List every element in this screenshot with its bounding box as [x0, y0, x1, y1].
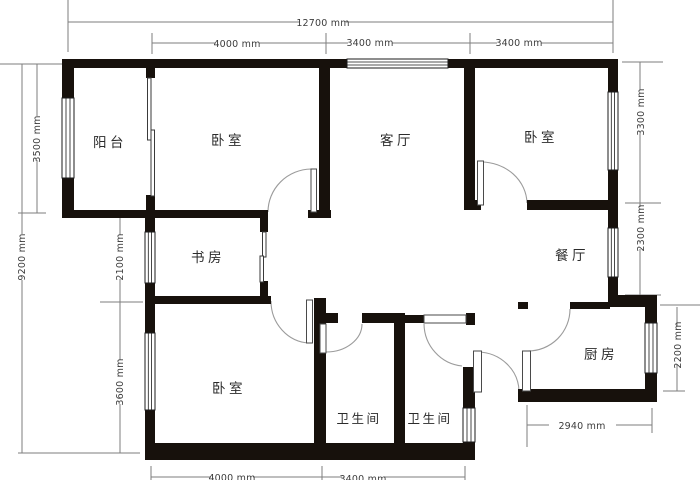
room-labels: 阳台 卧室 客厅 卧室 书房 餐厅 卧室 卫生间 卫生间 厨房 [93, 129, 618, 426]
study-window-icon [145, 232, 155, 283]
bedroom-nw-door-leaf [311, 169, 317, 212]
bedroom-ne-window-icon [608, 92, 618, 170]
bedroom-sw-window-icon [145, 333, 155, 410]
bath-west-door-leaf [320, 324, 326, 353]
room-label-dining: 餐厅 [555, 248, 589, 264]
study-slider-panel [260, 256, 264, 282]
room-label-bedroom-ne: 卧室 [524, 129, 558, 146]
room-label-balcony: 阳台 [93, 135, 127, 151]
dim-left-a: 3500 mm [32, 115, 43, 162]
dim-top-c: 3400 mm [495, 38, 542, 49]
room-label-living: 客厅 [380, 132, 414, 149]
room-label-bedroom-nw: 卧室 [211, 132, 245, 149]
dim-top-total: 12700 mm [296, 18, 349, 29]
bedroom-sw-door-leaf [307, 300, 313, 343]
room-label-bath-east: 卫生间 [407, 411, 452, 426]
passage-door-leaf [474, 351, 482, 392]
dining-window-icon [608, 228, 618, 277]
room-label-bedroom-sw: 卧室 [212, 380, 246, 397]
dim-bottom-b: 3400 mm [339, 474, 386, 480]
floor-plan-drawing: 阳台 卧室 客厅 卧室 书房 餐厅 卧室 卫生间 卫生间 厨房 12700 mm… [0, 0, 700, 480]
dim-top-a: 4000 mm [213, 39, 260, 50]
bath-east-door-leaf [424, 315, 466, 323]
bath-east-window-icon [463, 408, 475, 442]
kitchen-window-icon [645, 323, 657, 373]
living-room-window-icon [347, 59, 448, 68]
dim-left-c: 3600 mm [115, 358, 126, 405]
dim-bottom-kitchen: 2940 mm [558, 421, 605, 432]
dim-left-total: 9200 mm [17, 233, 28, 280]
dim-right-c: 2200 mm [673, 321, 684, 368]
dim-left-b: 2100 mm [115, 233, 126, 280]
dim-top-b: 3400 mm [346, 38, 393, 49]
dim-right-a: 3300 mm [636, 88, 647, 135]
kitchen-door-leaf [523, 351, 531, 391]
floor-plan: 阳台 卧室 客厅 卧室 书房 餐厅 卧室 卫生间 卫生间 厨房 12700 mm… [0, 0, 700, 480]
balcony-window-icon [62, 98, 74, 178]
study-slider-panel [263, 232, 267, 257]
bedroom-ne-door-leaf [478, 161, 484, 205]
dimension-lines [0, 0, 700, 480]
balcony-slider-panel [151, 130, 155, 196]
balcony-slider-panel [148, 78, 152, 140]
room-label-kitchen: 厨房 [584, 347, 618, 363]
dim-bottom-a: 4000 mm [208, 473, 255, 480]
room-label-study: 书房 [191, 250, 225, 266]
room-label-bath-west: 卫生间 [336, 411, 381, 426]
dim-right-b: 2300 mm [636, 204, 647, 251]
